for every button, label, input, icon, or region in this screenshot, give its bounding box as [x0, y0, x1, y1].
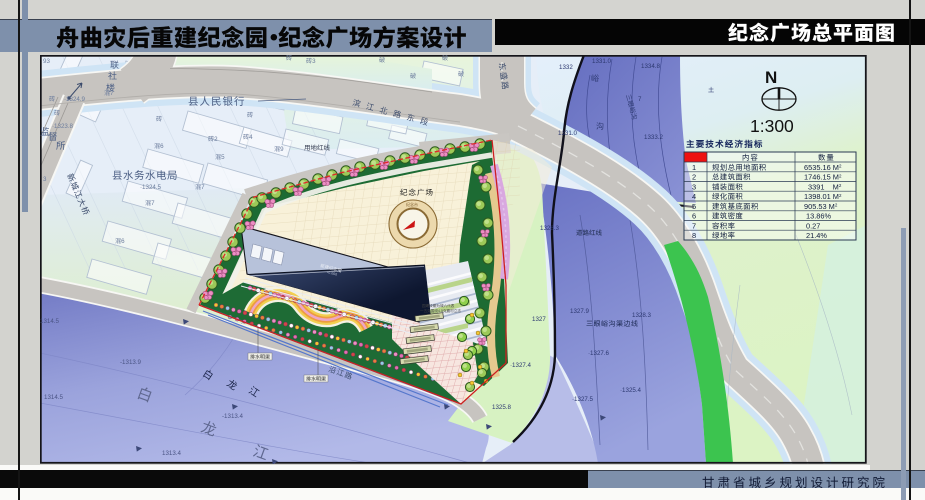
svg-text:1328.3: 1328.3 [632, 310, 651, 319]
svg-text:峪: 峪 [591, 73, 599, 84]
svg-text:1746.15 M2: 1746.15 M2 [804, 173, 842, 182]
svg-text:江: 江 [250, 440, 271, 464]
svg-text:7: 7 [692, 221, 696, 230]
svg-text:·1323.8: ·1323.8 [52, 121, 74, 130]
svg-text:三眼峪沟渠边线: 三眼峪沟渠边线 [586, 319, 639, 329]
svg-text:·1324.9: ·1324.9 [64, 94, 86, 103]
svg-text:1331.0: 1331.0 [592, 56, 611, 65]
svg-text:8: 8 [692, 231, 696, 240]
svg-text:2: 2 [692, 173, 696, 182]
svg-text:沿江路: 沿江路 [327, 363, 355, 382]
svg-text:1:300: 1:300 [750, 116, 794, 136]
svg-text:1: 1 [692, 163, 696, 172]
svg-text:砖4: 砖4 [243, 132, 253, 141]
svg-text:混6: 混6 [154, 141, 164, 150]
svg-text:破: 破 [410, 71, 416, 80]
svg-text:13.86%: 13.86% [806, 212, 831, 221]
svg-text:砖: 砖 [54, 108, 60, 117]
svg-text:6: 6 [692, 212, 696, 221]
svg-text:县人民银行: 县人民银行 [188, 94, 246, 109]
svg-text:N: N [765, 68, 777, 87]
svg-text:1325.8: 1325.8 [492, 402, 511, 411]
svg-text:1398.01 M2: 1398.01 M2 [804, 192, 842, 201]
svg-text:破: 破 [379, 55, 385, 64]
svg-text:·1327.5: ·1327.5 [572, 394, 594, 403]
svg-text:6535.16 M2: 6535.16 M2 [804, 163, 842, 172]
svg-text:砖3: 砖3 [306, 56, 316, 65]
svg-text:纪念广场: 纪念广场 [400, 187, 434, 198]
svg-text:用地红线: 用地红线 [304, 142, 331, 152]
svg-text:-1313.4: -1313.4 [222, 413, 244, 420]
svg-text:砖2: 砖2 [208, 134, 218, 143]
svg-text:0.27: 0.27 [806, 221, 820, 230]
svg-text:白: 白 [134, 382, 155, 407]
svg-text:·1327.6: ·1327.6 [588, 348, 610, 357]
svg-text:1313.4: 1313.4 [162, 450, 181, 457]
svg-text:破: 破 [458, 69, 464, 78]
svg-text:-1313.9: -1313.9 [120, 359, 142, 366]
svg-text:白: 白 [200, 365, 217, 383]
svg-text:龙: 龙 [224, 375, 241, 393]
svg-text:混7: 混7 [145, 198, 155, 207]
svg-text:滨江北路东段: 滨江北路东段 [351, 97, 435, 129]
svg-text:混5: 混5 [215, 152, 225, 161]
svg-text:砖: 砖 [156, 114, 162, 123]
svg-text:数量: 数量 [818, 152, 835, 163]
svg-text:·1325.4: ·1325.4 [620, 385, 642, 394]
svg-text:1332: 1332 [559, 62, 573, 71]
svg-text:905.53 M2: 905.53 M2 [804, 202, 838, 211]
svg-text:3: 3 [43, 174, 47, 183]
svg-text:一五克围绕4.5克震村立志: 一五克围绕4.5克震村立志 [420, 308, 461, 314]
svg-text:县水务水电局: 县水务水电局 [112, 168, 178, 183]
svg-text:93: 93 [43, 56, 50, 65]
svg-text:1327.9: 1327.9 [570, 306, 589, 315]
svg-text:主要技术经济指标: 主要技术经济指标 [686, 138, 764, 150]
svg-text:5: 5 [692, 202, 696, 211]
svg-text:1334.8: 1334.8 [641, 61, 660, 70]
svg-text:砖: 砖 [286, 55, 292, 62]
svg-text:3391 M2: 3391 M2 [808, 182, 842, 191]
svg-text:·1324.5: ·1324.5 [140, 182, 162, 191]
svg-text:破: 破 [442, 55, 448, 62]
svg-text:江: 江 [246, 382, 263, 400]
svg-text:道路红线: 道路红线 [576, 227, 603, 237]
svg-text:1314.5: 1314.5 [40, 318, 59, 325]
svg-text:·1327.4: ·1327.4 [510, 360, 532, 369]
svg-text:4: 4 [692, 192, 696, 201]
svg-text:土: 土 [708, 85, 714, 94]
svg-text:新城江大桥: 新城江大桥 [64, 172, 92, 218]
svg-text:混6: 混6 [115, 236, 125, 245]
svg-text:砖: 砖 [49, 94, 55, 103]
svg-text:混7: 混7 [195, 182, 205, 191]
svg-text:龙: 龙 [198, 416, 219, 441]
svg-text:1327: 1327 [532, 314, 546, 323]
svg-text:东盛路: 东盛路 [496, 62, 511, 92]
svg-text:3: 3 [692, 182, 696, 191]
svg-text:1314.5: 1314.5 [44, 394, 63, 401]
svg-text:1328.3: 1328.3 [540, 223, 559, 232]
svg-text:1331.0: 1331.0 [558, 128, 577, 137]
svg-text:混7: 混7 [104, 88, 114, 97]
svg-text:砖: 砖 [247, 110, 253, 119]
svg-text:混9: 混9 [274, 144, 284, 153]
svg-text:1333.2: 1333.2 [644, 132, 663, 141]
svg-text:所: 所 [56, 138, 66, 152]
svg-text:沟: 沟 [596, 121, 604, 132]
svg-text:7: 7 [638, 94, 642, 103]
svg-text:21.4%: 21.4% [806, 231, 827, 240]
svg-text:绿地率: 绿地率 [712, 230, 736, 241]
